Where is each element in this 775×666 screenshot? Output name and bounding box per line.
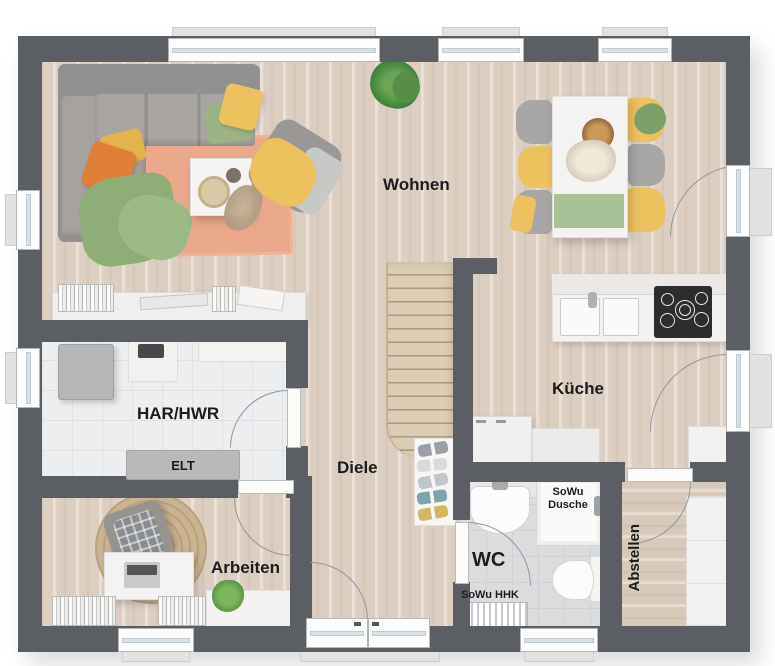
room-label-arbeiten: Arbeiten <box>211 558 280 578</box>
decor-vase <box>226 168 241 183</box>
wall-arbeiten-right <box>290 476 312 628</box>
wall-wc-right <box>600 462 622 628</box>
wall-wc-left-upper <box>453 462 470 520</box>
wc-door-leaf <box>455 522 469 584</box>
staircase <box>386 262 458 458</box>
wall-har-top <box>42 320 308 342</box>
books <box>212 286 236 312</box>
entry-stoop <box>748 168 772 236</box>
heater-label: SoWu HHK <box>461 589 519 601</box>
cabinet-handle <box>476 420 486 423</box>
utility-device <box>138 344 164 358</box>
room-label-har-hwr: HAR/HWR <box>137 404 219 424</box>
room-label-kueche: Küche <box>552 379 604 399</box>
door-handle <box>354 622 361 626</box>
wall-right <box>726 36 750 652</box>
elt-cabinet: ELT <box>126 450 240 480</box>
window <box>16 348 40 408</box>
decor-bowl <box>198 176 230 208</box>
washing-machine <box>58 344 114 400</box>
storage-shelf <box>686 496 728 626</box>
entry-door <box>726 165 750 237</box>
window <box>598 38 672 62</box>
books <box>52 596 116 626</box>
shower-label-line1: SoWu <box>536 486 600 499</box>
window <box>438 38 524 62</box>
dining-chair <box>628 144 665 186</box>
books <box>58 284 114 312</box>
room-label-wc: WC <box>472 549 505 572</box>
laptop-screen <box>127 565 157 575</box>
window <box>168 38 380 62</box>
kitchen-door <box>726 350 750 432</box>
kitchen-sink <box>603 298 639 336</box>
cooktop <box>654 286 712 338</box>
door-handle <box>372 622 379 626</box>
burner <box>695 292 708 305</box>
radiator <box>466 602 528 628</box>
kitchen-stoop <box>748 354 772 428</box>
window <box>118 628 194 652</box>
burner-inner <box>679 304 691 316</box>
wall-abstellen-top-stub <box>690 462 726 482</box>
dining-chair <box>516 100 552 144</box>
burner <box>660 313 675 328</box>
wall-stairs <box>453 258 473 462</box>
har-door-leaf <box>287 388 301 448</box>
books <box>158 596 206 626</box>
dining-chair <box>518 146 554 188</box>
window <box>520 628 598 652</box>
room-label-diele: Diele <box>337 458 378 478</box>
burner <box>694 312 709 327</box>
room-label-wohnen: Wohnen <box>383 175 450 195</box>
arbeiten-door-leaf <box>238 480 294 494</box>
burner <box>661 293 674 306</box>
toilet-bowl <box>552 560 594 600</box>
abstellen-door-leaf <box>627 468 693 482</box>
room-label-abstellen: Abstellen <box>626 524 643 592</box>
window <box>16 190 40 250</box>
shower-label-line2: Dusche <box>536 499 600 512</box>
wall-har-right-upper <box>286 320 308 388</box>
wall-left <box>18 36 42 652</box>
wall-stairs-stub <box>453 258 497 274</box>
floor-plan: ELT <box>0 0 775 666</box>
shower-label: SoWu Dusche <box>536 486 600 512</box>
faucet <box>588 292 597 308</box>
cabinet-handle <box>496 420 506 423</box>
dining-chair <box>626 188 665 232</box>
room-label-elt: ELT <box>171 458 195 473</box>
table-runner-green <box>554 194 624 228</box>
